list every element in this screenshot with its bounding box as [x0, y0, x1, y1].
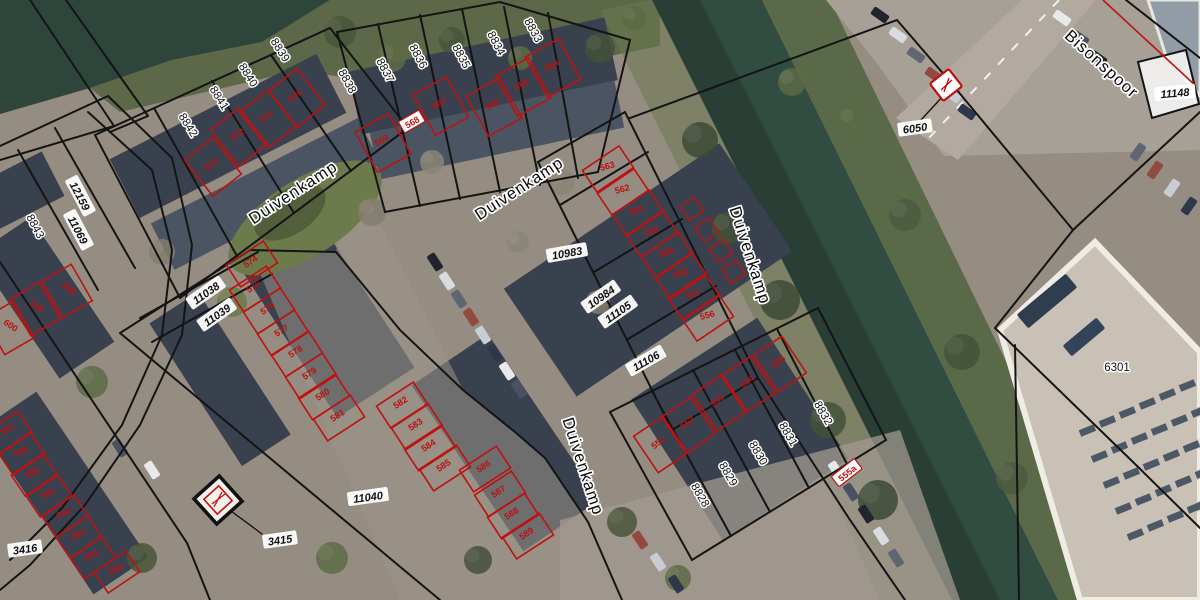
map-canvas[interactable]: DuivenkampDuivenkampDuivenkampDuivenkamp…	[0, 0, 1200, 600]
parcel-label: 6301	[1104, 362, 1130, 374]
map-viewport[interactable]: DuivenkampDuivenkampDuivenkampDuivenkamp…	[0, 0, 1200, 600]
